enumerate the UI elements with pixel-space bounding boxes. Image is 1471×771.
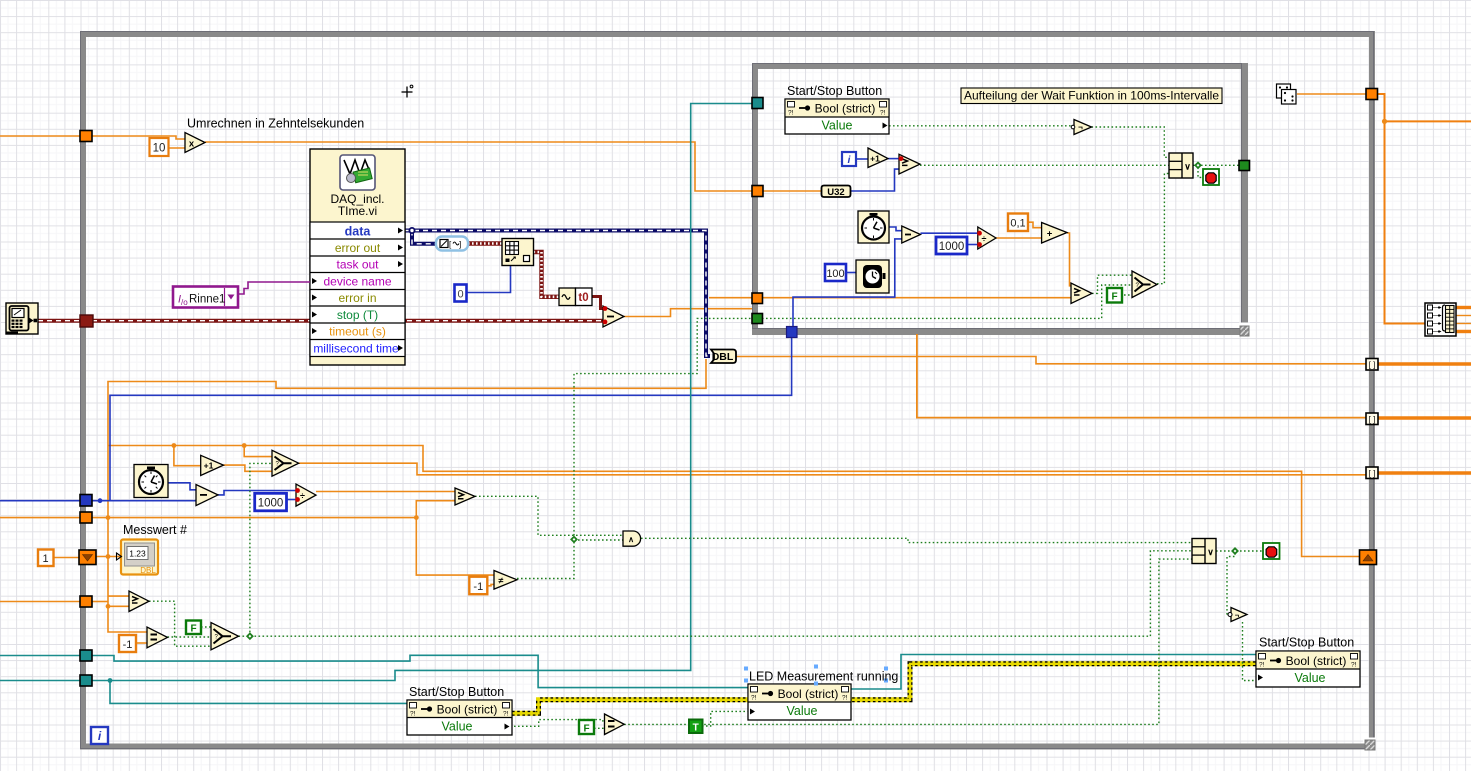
svg-text:Umrechnen in Zehntelsekunden: Umrechnen in Zehntelsekunden <box>187 117 364 131</box>
svg-text:Value: Value <box>786 704 817 718</box>
svg-text:F: F <box>190 624 196 635</box>
svg-text:+: + <box>1047 229 1053 240</box>
svg-text:?!: ?! <box>1259 662 1265 669</box>
svg-text:1: 1 <box>42 553 48 565</box>
svg-text:F: F <box>583 724 589 735</box>
svg-text:DBL: DBL <box>140 566 156 575</box>
svg-text:÷: ÷ <box>982 234 987 244</box>
svg-text:millisecond time: millisecond time <box>313 342 399 356</box>
svg-text:Value: Value <box>1294 671 1325 685</box>
svg-text:-1: -1 <box>123 639 133 651</box>
svg-text:Bool (strict): Bool (strict) <box>1286 654 1347 668</box>
svg-text:¬: ¬ <box>1078 123 1083 132</box>
svg-text:Value: Value <box>821 119 852 133</box>
svg-text:Bool (strict): Bool (strict) <box>437 703 498 717</box>
svg-text:100: 100 <box>826 268 844 280</box>
svg-text:?!: ?! <box>751 695 757 702</box>
svg-text:Start/Stop Button: Start/Stop Button <box>409 685 504 699</box>
svg-text:DBL: DBL <box>712 351 734 363</box>
svg-text:x: x <box>189 139 195 150</box>
svg-text:?!: ?! <box>880 110 886 117</box>
svg-text:10: 10 <box>153 143 166 155</box>
svg-text:Aufteilung der Wait Funktion i: Aufteilung der Wait Funktion in 100ms-In… <box>964 89 1219 103</box>
svg-text:-1: -1 <box>473 581 483 593</box>
svg-text:1000: 1000 <box>258 498 284 510</box>
svg-text:?!: ?! <box>503 711 509 718</box>
svg-text:[ ]: [ ] <box>1369 361 1376 370</box>
svg-text:Value: Value <box>441 720 472 734</box>
svg-text:LED Measurement running: LED Measurement running <box>749 670 898 684</box>
svg-text:timeout (s): timeout (s) <box>329 325 386 339</box>
svg-text:T: T <box>693 723 699 734</box>
svg-text:¬: ¬ <box>1235 611 1240 620</box>
svg-text:?!: ?! <box>842 695 848 702</box>
svg-text:≠: ≠ <box>499 576 504 586</box>
svg-text:]: ] <box>459 240 461 249</box>
svg-text:Bool (strict): Bool (strict) <box>778 687 839 701</box>
svg-text:?!: ?! <box>788 110 794 117</box>
svg-text:Start/Stop Button: Start/Stop Button <box>1259 636 1354 650</box>
svg-text:Messwert #: Messwert # <box>123 523 187 537</box>
svg-text:TIme.vi: TIme.vi <box>338 204 377 218</box>
svg-text:+1: +1 <box>204 461 214 471</box>
svg-text:0: 0 <box>457 289 463 301</box>
svg-text:0,1: 0,1 <box>1010 218 1025 230</box>
svg-text:Rinne1: Rinne1 <box>189 294 225 306</box>
svg-text:Bool (strict): Bool (strict) <box>815 102 876 116</box>
svg-text:stop (T): stop (T) <box>337 308 378 322</box>
svg-text:∨: ∨ <box>1184 162 1191 172</box>
svg-text:÷: ÷ <box>300 491 305 501</box>
svg-text:error in: error in <box>338 291 376 305</box>
svg-text:data: data <box>345 225 372 239</box>
svg-text:task out: task out <box>336 258 379 272</box>
svg-text:1.23: 1.23 <box>129 549 146 559</box>
svg-text:?!: ?! <box>1351 662 1357 669</box>
svg-text:?!: ?! <box>410 711 416 718</box>
svg-text:[ ]: [ ] <box>1369 415 1376 424</box>
svg-text:∨: ∨ <box>1207 547 1214 557</box>
svg-text:∧: ∧ <box>628 535 634 544</box>
svg-text:t0: t0 <box>578 292 588 304</box>
svg-text:Start/Stop Button: Start/Stop Button <box>787 84 882 98</box>
svg-text:+1: +1 <box>870 154 880 164</box>
svg-text:device name: device name <box>323 275 391 289</box>
svg-text:1000: 1000 <box>939 241 965 253</box>
svg-text:U32: U32 <box>827 187 844 198</box>
svg-text:/o: /o <box>181 298 188 307</box>
svg-text:[ ]: [ ] <box>1369 469 1376 478</box>
svg-text:F: F <box>1111 292 1117 303</box>
svg-text:error out: error out <box>335 241 381 255</box>
